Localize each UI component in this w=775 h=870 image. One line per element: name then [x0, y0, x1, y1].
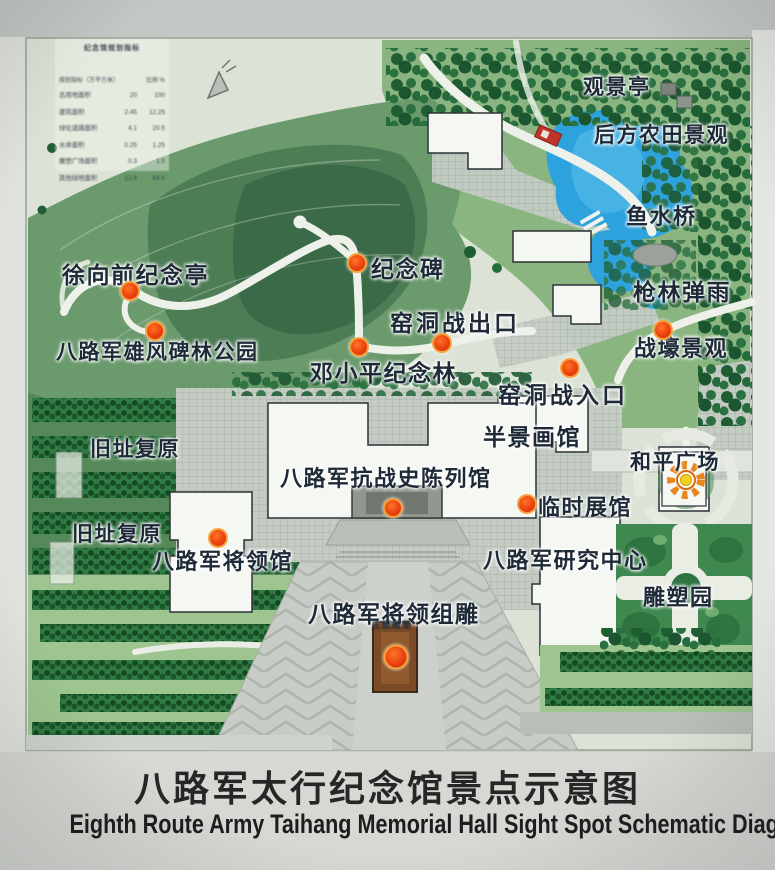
legend-row: 建筑面积2.4512.25 — [59, 105, 165, 122]
legend-row: 雕塑广场面积0.31.5 — [59, 154, 165, 171]
legend-row: 总用地面积20100 — [59, 88, 165, 105]
legend-row: 水体面积0.251.25 — [59, 138, 165, 155]
photo-of-site-map: 纪念馆规划指标 规划指标（万平方米） 比例 % 总用地面积20100建筑面积2.… — [0, 0, 775, 870]
legend-row: 其他绿地面积12.964.5 — [59, 171, 165, 188]
legend-rows: 总用地面积20100建筑面积2.4512.25绿化道路面积4.120.5水体面积… — [59, 88, 165, 187]
legend-row: 绿化道路面积4.120.5 — [59, 121, 165, 138]
legend-title: 纪念馆规划指标 — [55, 43, 169, 53]
map-title-english: Eighth Route Army Taihang Memorial Hall … — [70, 809, 706, 840]
legend-header-name: 规划指标（万平方米） — [59, 75, 119, 84]
map-title-chinese: 八路军太行纪念馆景点示意图 — [0, 760, 775, 812]
legend-header-ratio: 比例 % — [146, 75, 165, 84]
legend-header: 规划指标（万平方米） 比例 % — [59, 75, 165, 84]
monument-sub-label: 主题雕塑 — [372, 618, 412, 631]
legend-table: 纪念馆规划指标 规划指标（万平方米） 比例 % 总用地面积20100建筑面积2.… — [55, 39, 169, 171]
